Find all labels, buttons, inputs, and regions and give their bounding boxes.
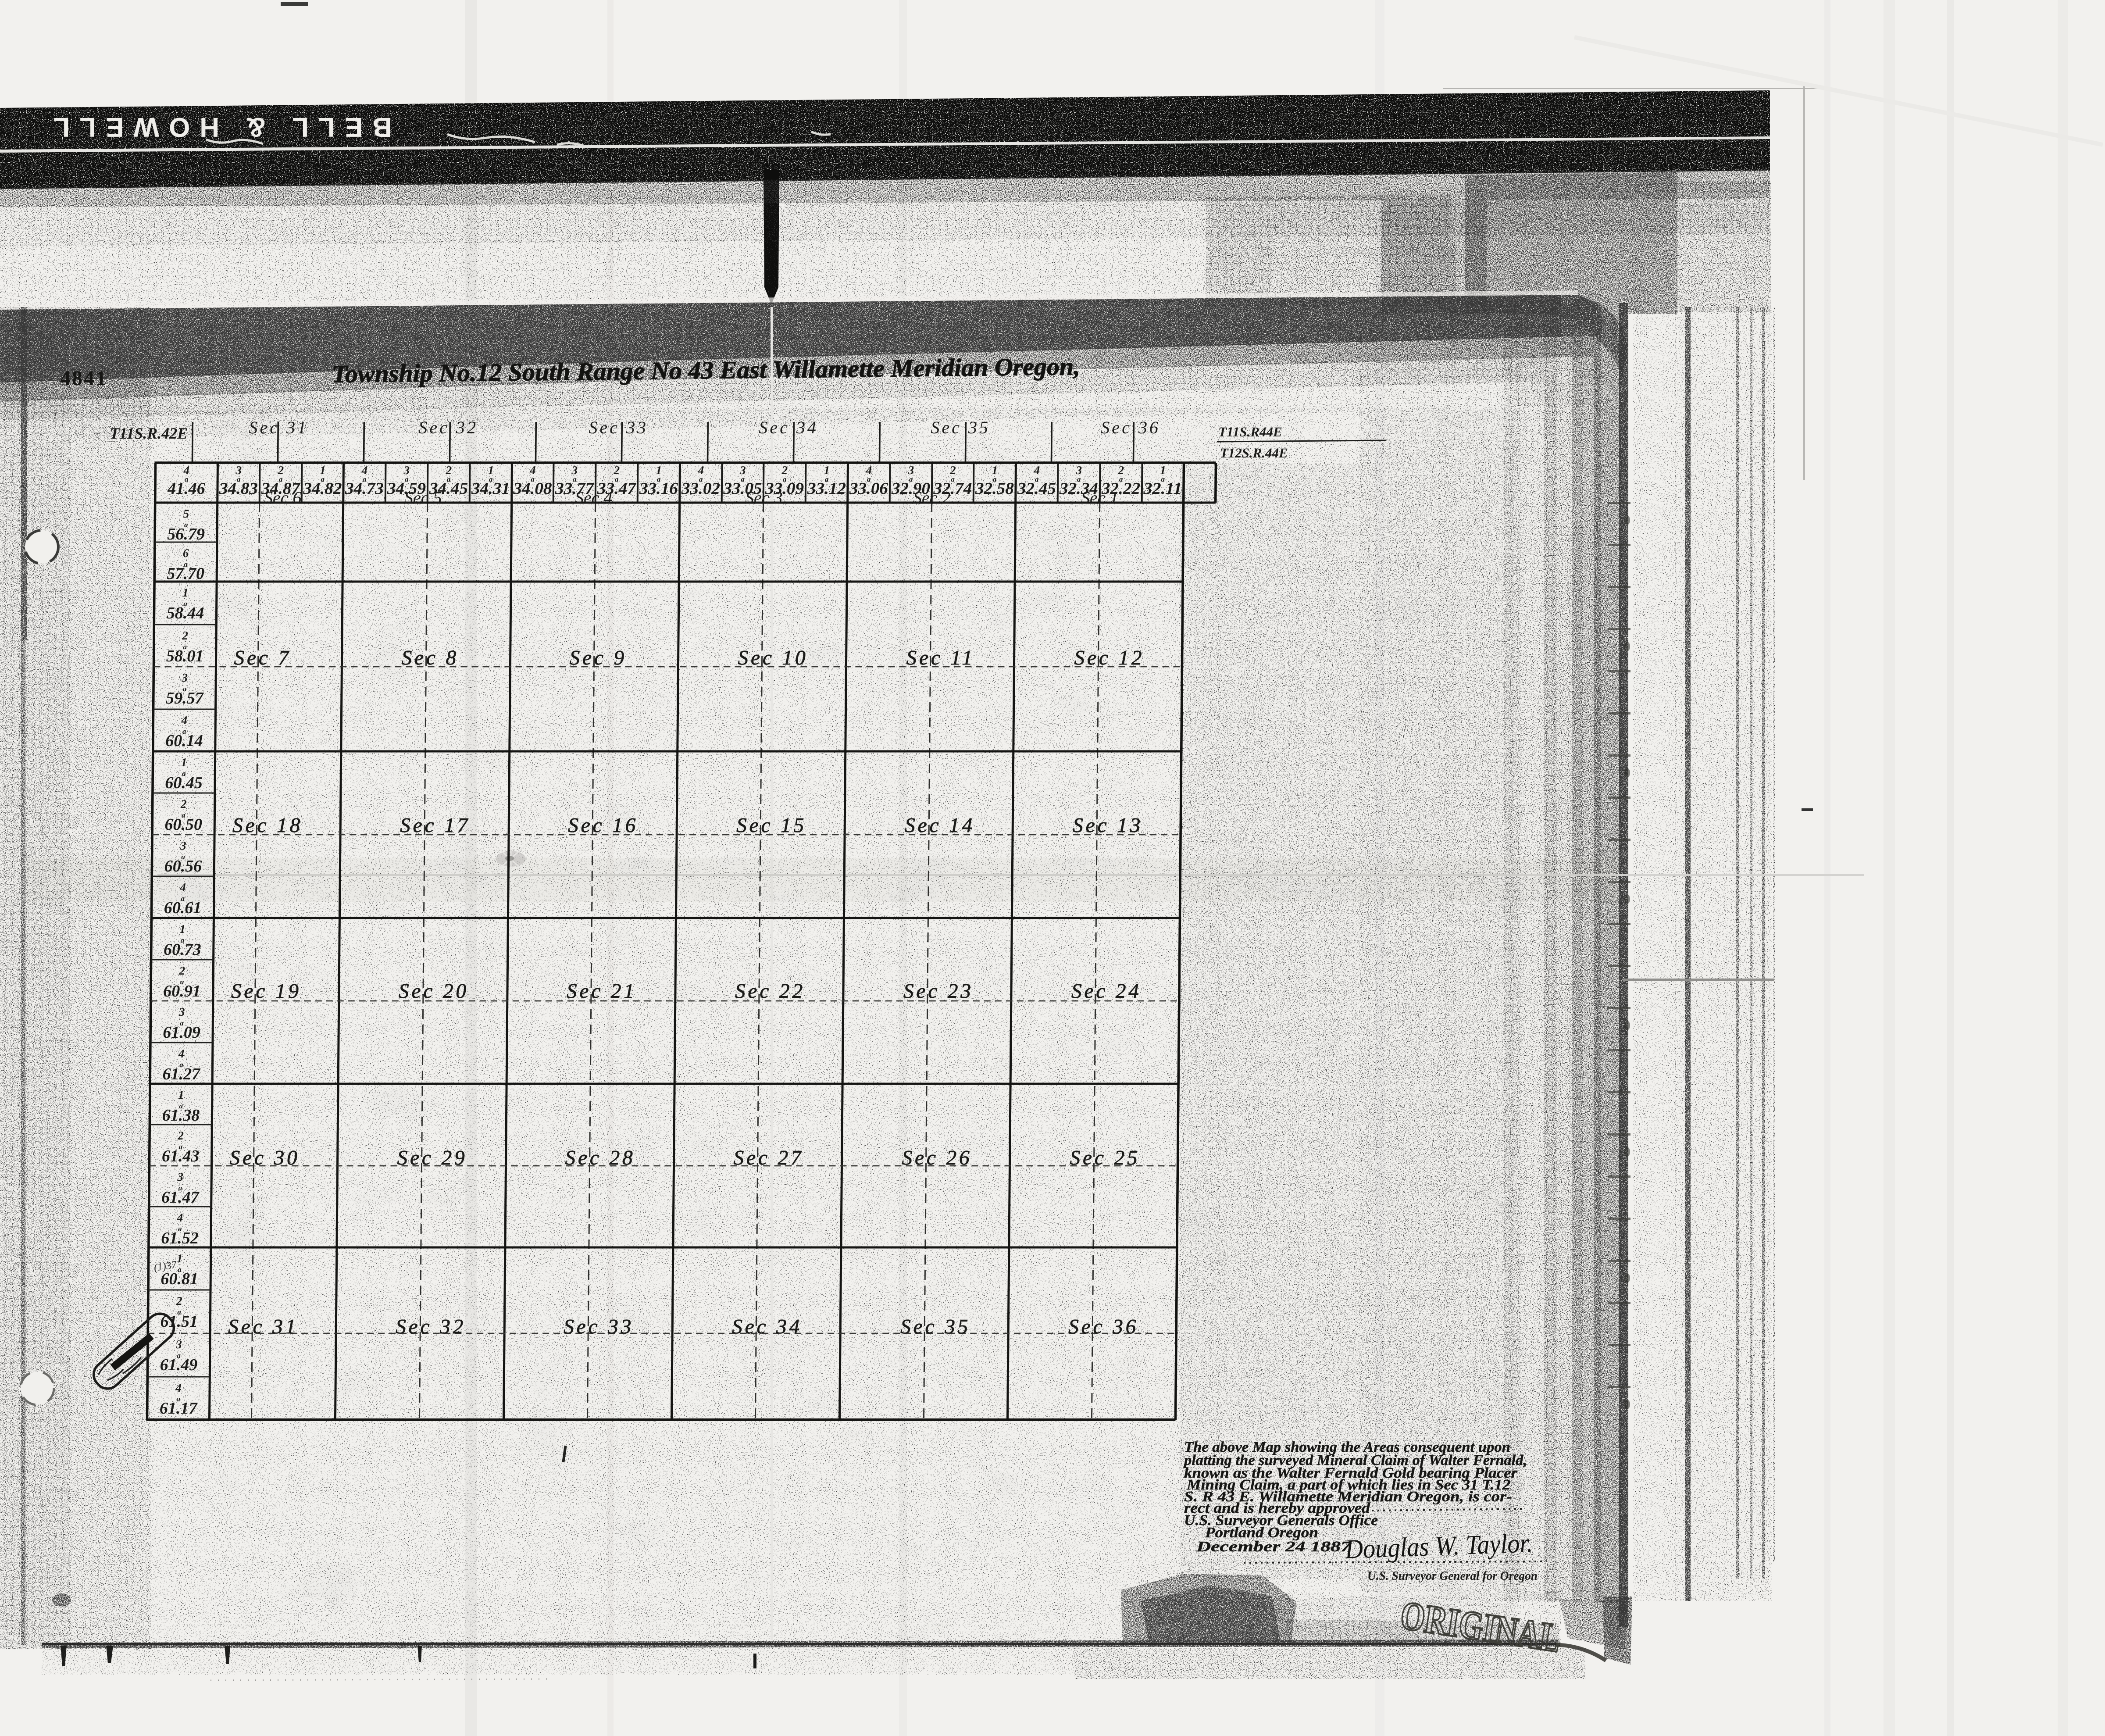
- svg-text:1: 1: [178, 1088, 184, 1101]
- svg-text:60.73: 60.73: [164, 940, 201, 959]
- svg-text:1: 1: [179, 922, 186, 936]
- svg-text:Sec 30: Sec 30: [229, 1147, 300, 1169]
- svg-text:Sec 8: Sec 8: [401, 647, 459, 669]
- svg-text:61.38: 61.38: [162, 1106, 200, 1125]
- svg-text:Sec 34: Sec 34: [732, 1315, 802, 1338]
- svg-text:34.73: 34.73: [345, 479, 384, 498]
- svg-text:Sec 36: Sec 36: [1101, 418, 1160, 437]
- svg-text:4: 4: [178, 1047, 185, 1060]
- svg-text:32.45: 32.45: [1017, 479, 1056, 498]
- svg-text:34.31: 34.31: [471, 479, 510, 498]
- svg-text:Sec 22: Sec 22: [735, 980, 805, 1003]
- svg-text:Sec 10: Sec 10: [738, 647, 808, 669]
- svg-text:4: 4: [175, 1381, 182, 1394]
- svg-text:2: 2: [176, 1294, 182, 1307]
- svg-text:Sec 11: Sec 11: [906, 647, 975, 669]
- svg-text:32.11: 32.11: [1143, 479, 1182, 498]
- svg-text:Sec 26: Sec 26: [902, 1147, 972, 1169]
- svg-text:4841: 4841: [60, 367, 107, 390]
- svg-text:T11S.R.42E: T11S.R.42E: [110, 425, 188, 442]
- svg-text:December 24 1887: December 24 1887: [1196, 1539, 1352, 1555]
- svg-text:34.08: 34.08: [513, 479, 552, 498]
- svg-text:Sec 13: Sec 13: [1073, 814, 1143, 837]
- svg-text:3: 3: [181, 671, 188, 684]
- svg-text:34.83: 34.83: [219, 479, 258, 498]
- svg-text:Sec 4: Sec 4: [575, 488, 613, 507]
- svg-text:59.57: 59.57: [166, 689, 204, 707]
- svg-text:56.79: 56.79: [167, 525, 205, 543]
- svg-text:Sec 1: Sec 1: [1081, 488, 1119, 507]
- svg-text:Sec 25: Sec 25: [1070, 1147, 1140, 1169]
- svg-text:61.17: 61.17: [160, 1399, 198, 1418]
- svg-text:T12S.R.44E: T12S.R.44E: [1220, 445, 1288, 461]
- svg-text:61.09: 61.09: [163, 1023, 200, 1042]
- svg-text:60.56: 60.56: [164, 857, 202, 875]
- svg-text:33.02: 33.02: [681, 479, 720, 498]
- svg-text:Sec 36: Sec 36: [1068, 1315, 1138, 1338]
- svg-text:T11S.R44E: T11S.R44E: [1218, 424, 1282, 439]
- svg-text:Sec 18: Sec 18: [232, 814, 303, 837]
- svg-text:1: 1: [181, 756, 187, 769]
- svg-text:2: 2: [179, 964, 186, 977]
- svg-text:5: 5: [183, 507, 189, 520]
- svg-text:Sec 6: Sec 6: [264, 488, 302, 507]
- svg-text:34.82: 34.82: [303, 479, 342, 498]
- svg-text:41.46: 41.46: [167, 479, 205, 498]
- svg-text:3: 3: [175, 1338, 182, 1351]
- svg-text:32.58: 32.58: [975, 479, 1014, 498]
- svg-text:2: 2: [177, 1129, 184, 1142]
- svg-text:60.45: 60.45: [165, 774, 203, 792]
- svg-text:58.01: 58.01: [166, 647, 204, 665]
- svg-text:Sec 12: Sec 12: [1074, 647, 1144, 669]
- svg-text:60.91: 60.91: [163, 982, 201, 1000]
- svg-text:61.27: 61.27: [162, 1065, 201, 1083]
- svg-text:BELL & HOWELL: BELL & HOWELL: [43, 112, 392, 142]
- svg-text:4: 4: [179, 881, 186, 894]
- svg-text:6: 6: [183, 547, 189, 560]
- svg-text:U.S. Surveyor General for Oreg: U.S. Surveyor General for Oregon: [1367, 1569, 1538, 1583]
- svg-text:Sec 15: Sec 15: [736, 814, 806, 837]
- svg-text:61.49: 61.49: [160, 1356, 198, 1374]
- svg-text:60.14: 60.14: [165, 732, 203, 750]
- svg-text:60.50: 60.50: [164, 815, 202, 834]
- svg-text:Sec 7: Sec 7: [234, 647, 291, 669]
- svg-text:Sec 21: Sec 21: [567, 980, 637, 1003]
- svg-text:2: 2: [180, 797, 187, 811]
- svg-text:Sec 17: Sec 17: [400, 814, 470, 837]
- svg-text:Sec 23: Sec 23: [903, 980, 974, 1003]
- svg-text:Sec 32: Sec 32: [418, 418, 478, 437]
- svg-text:58.44: 58.44: [167, 604, 204, 622]
- svg-text:61.43: 61.43: [162, 1147, 200, 1165]
- svg-text:61.47: 61.47: [161, 1188, 200, 1207]
- svg-text:4: 4: [177, 1211, 183, 1224]
- svg-text:Sec 3: Sec 3: [745, 488, 783, 507]
- svg-text:61.52: 61.52: [161, 1229, 199, 1247]
- svg-text:Sec 29: Sec 29: [397, 1147, 467, 1169]
- svg-text:Sec 31: Sec 31: [228, 1315, 298, 1338]
- svg-text:1: 1: [177, 1252, 183, 1265]
- svg-text:57.70: 57.70: [167, 564, 204, 583]
- svg-text:60.61: 60.61: [164, 899, 202, 917]
- svg-text:4: 4: [181, 714, 187, 727]
- svg-text:3: 3: [177, 1170, 183, 1183]
- svg-text:Sec 2: Sec 2: [913, 488, 951, 507]
- svg-text:3: 3: [180, 839, 186, 852]
- svg-text:Sec 5: Sec 5: [404, 488, 442, 507]
- svg-text:3: 3: [178, 1005, 185, 1018]
- svg-text:Sec 33: Sec 33: [589, 418, 648, 437]
- svg-text:Sec 35: Sec 35: [900, 1315, 970, 1338]
- svg-text:Sec 27: Sec 27: [733, 1147, 803, 1169]
- svg-text:Sec 24: Sec 24: [1071, 980, 1142, 1003]
- svg-text:Sec 28: Sec 28: [565, 1147, 635, 1169]
- svg-text:Sec 31: Sec 31: [249, 418, 308, 437]
- svg-text:60.81: 60.81: [161, 1270, 198, 1288]
- svg-text:Sec 34: Sec 34: [759, 418, 818, 437]
- svg-text:Sec 35: Sec 35: [931, 418, 990, 437]
- svg-text:Sec 19: Sec 19: [231, 980, 301, 1003]
- svg-text:Sec 33: Sec 33: [564, 1315, 634, 1338]
- svg-text:Sec 14: Sec 14: [905, 814, 975, 837]
- svg-text:Sec 32: Sec 32: [396, 1315, 466, 1338]
- svg-text:Sec 9: Sec 9: [569, 647, 627, 669]
- svg-text:2: 2: [182, 629, 188, 642]
- svg-text:33.12: 33.12: [807, 479, 846, 498]
- svg-text:1: 1: [182, 586, 189, 599]
- svg-text:33.06: 33.06: [849, 479, 888, 498]
- svg-text:Sec 16: Sec 16: [568, 814, 638, 837]
- svg-text:33.16: 33.16: [639, 479, 678, 498]
- svg-text:Sec 20: Sec 20: [399, 980, 469, 1003]
